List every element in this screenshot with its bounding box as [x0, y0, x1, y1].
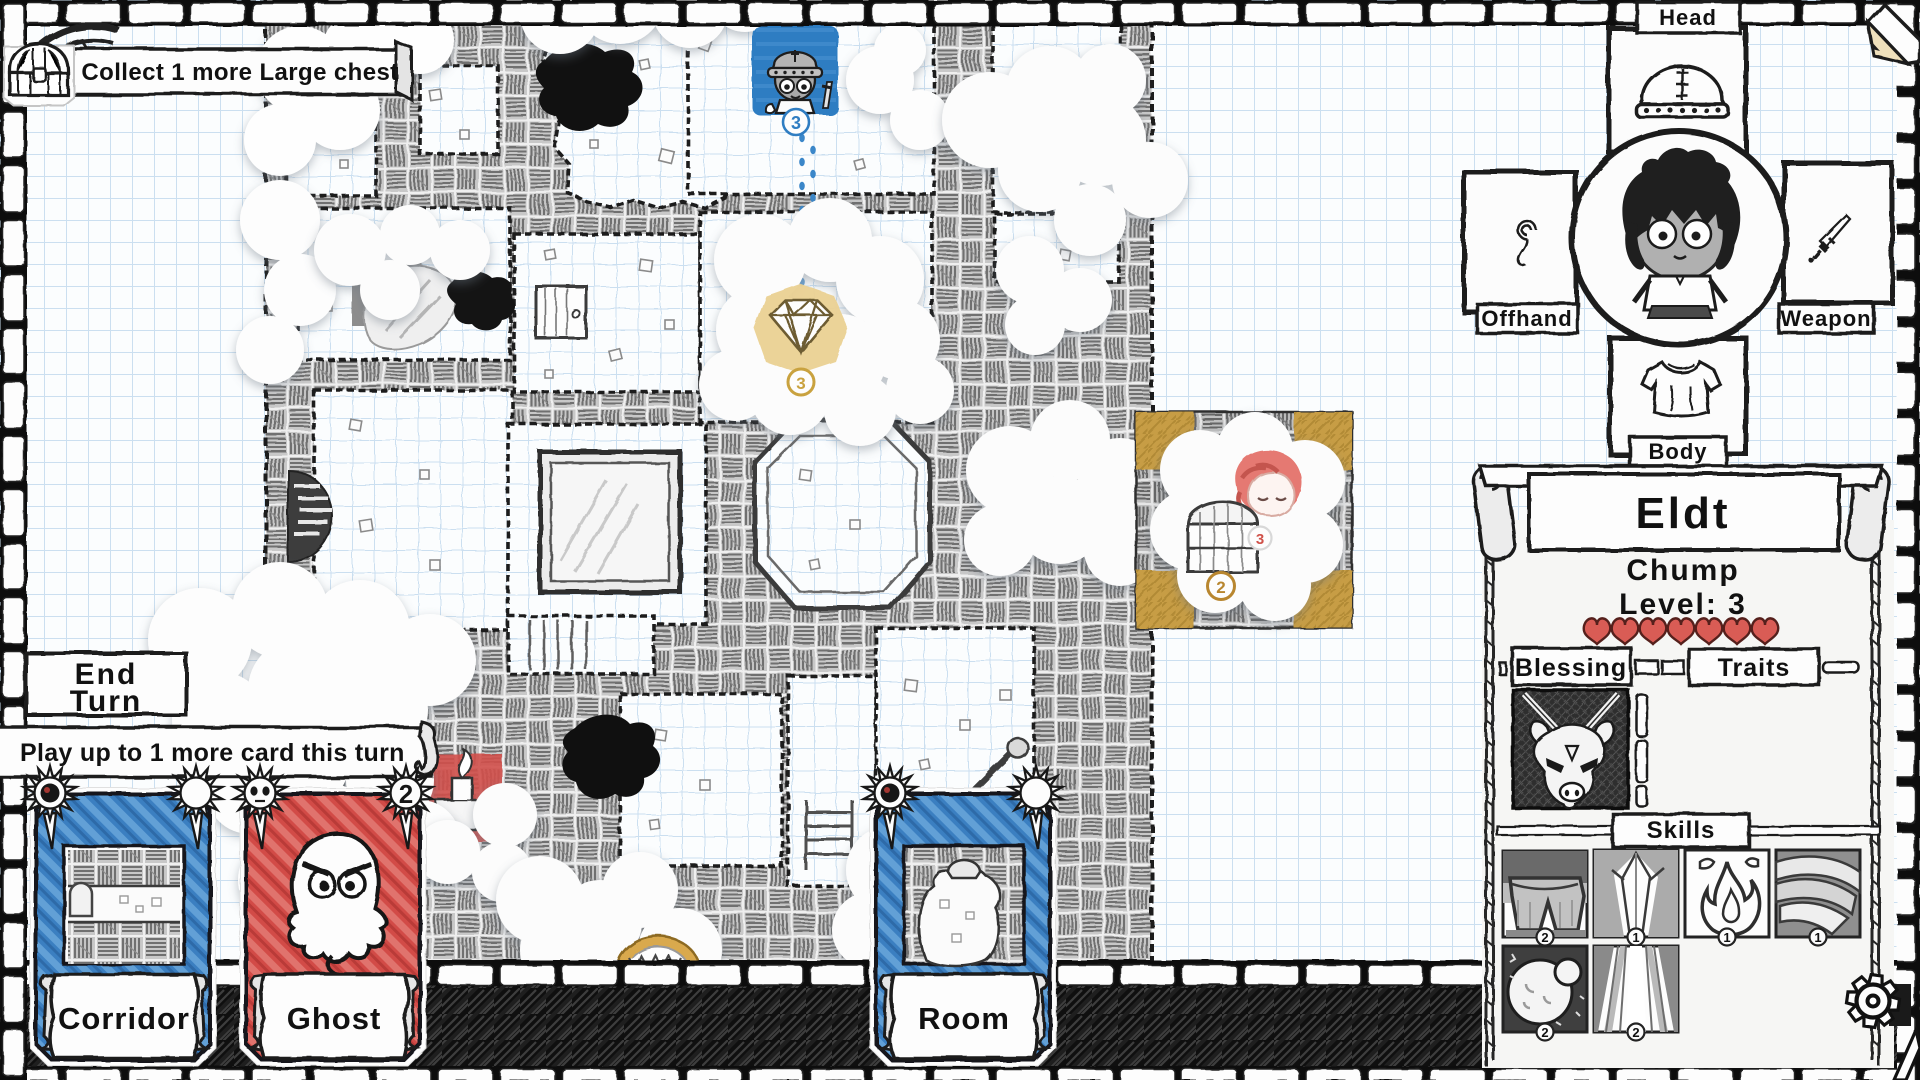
- svg-text:3: 3: [1256, 531, 1264, 548]
- svg-text:1: 1: [1723, 930, 1730, 945]
- svg-text:Chump: Chump: [1626, 554, 1739, 587]
- svg-text:Room: Room: [918, 1001, 1010, 1036]
- svg-text:Blessing: Blessing: [1515, 654, 1627, 682]
- svg-text:Level: 3: Level: 3: [1619, 588, 1747, 621]
- svg-text:2: 2: [399, 779, 413, 809]
- svg-text:Traits: Traits: [1718, 654, 1791, 682]
- svg-text:Body: Body: [1649, 439, 1708, 464]
- svg-text:Head: Head: [1659, 5, 1717, 30]
- svg-text:2: 2: [1632, 1025, 1639, 1040]
- svg-text:3: 3: [791, 113, 801, 133]
- svg-text:Play up to 1 more card this tu: Play up to 1 more card this turn: [20, 739, 405, 767]
- svg-text:2: 2: [1216, 578, 1225, 597]
- svg-text:Collect 1 more Large chest: Collect 1 more Large chest: [81, 59, 398, 86]
- svg-text:Corridor: Corridor: [58, 1001, 190, 1036]
- svg-text:3: 3: [796, 374, 805, 393]
- svg-text:Weapon: Weapon: [1780, 306, 1871, 331]
- svg-text:Skills: Skills: [1647, 817, 1716, 844]
- svg-text:2: 2: [1541, 930, 1548, 945]
- svg-text:Eldt: Eldt: [1635, 489, 1730, 538]
- svg-text:Offhand: Offhand: [1481, 306, 1572, 331]
- svg-text:1: 1: [1632, 930, 1639, 945]
- svg-text:2: 2: [1541, 1025, 1548, 1040]
- svg-text:Turn: Turn: [70, 685, 142, 718]
- svg-text:1: 1: [1814, 930, 1821, 945]
- svg-text:Ghost: Ghost: [287, 1001, 382, 1036]
